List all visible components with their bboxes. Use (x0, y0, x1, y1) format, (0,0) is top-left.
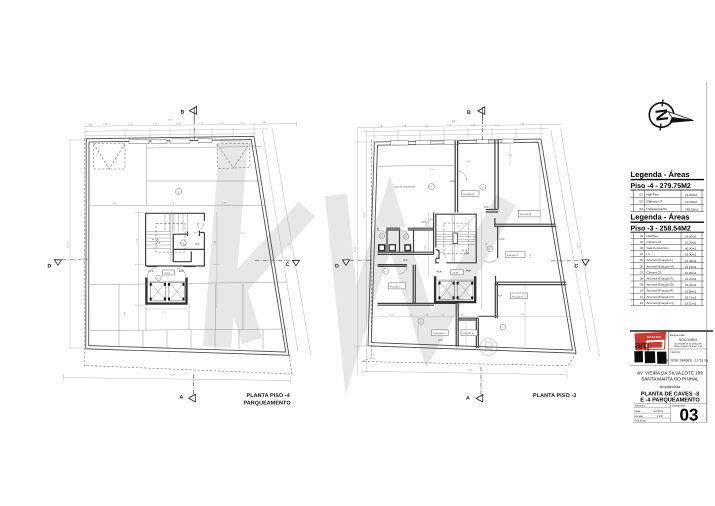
svg-text:D: D (48, 264, 52, 270)
svg-text:07: 07 (640, 270, 644, 274)
svg-text:Sala de Condominio: Sala de Condominio (394, 186, 416, 189)
svg-text:Arrumos (Fracção P): Arrumos (Fracção P) (647, 289, 674, 293)
svg-text:Data:: Data: (635, 410, 641, 413)
svg-text:Sociedade de Construções: Sociedade de Construções (674, 342, 702, 345)
svg-text:Arrumos (Fracção M): Arrumos (Fracção M) (647, 264, 674, 268)
svg-text:I.S.: I.S. (647, 252, 652, 256)
svg-text:PARQUEAMENTO: PARQUEAMENTO (244, 401, 291, 407)
svg-text:25.71m2: 25.71m2 (685, 295, 697, 299)
svg-text:E -4 PARQUEAMENTO: E -4 PARQUEAMENTO (640, 398, 700, 404)
svg-text:11: 11 (640, 295, 643, 299)
svg-text:Fracção L: Fracção L (390, 285, 401, 288)
svg-text:06: 06 (640, 264, 644, 268)
svg-text:03: 03 (640, 246, 644, 250)
svg-text:Fiúza & Abreu Simões, Lda: Fiúza & Abreu Simões, Lda (674, 345, 703, 348)
svg-text:PCP: PCP (484, 206, 489, 209)
svg-text:Câmara CF: Câmara CF (647, 240, 662, 244)
svg-text:PCP: PCP (196, 223, 199, 228)
svg-text:Câmara CF: Câmara CF (647, 270, 662, 274)
svg-text:Técnico:: Técnico: (670, 350, 681, 354)
svg-text:22.00m2: 22.00m2 (685, 283, 697, 287)
svg-text:Arquitectura: Arquitectura (660, 385, 681, 389)
svg-text:03: 03 (680, 405, 699, 424)
svg-text:04: 04 (640, 252, 644, 256)
svg-text:Arrumos (Fracção N): Arrumos (Fracção N) (647, 301, 674, 305)
svg-text:21.20m2: 21.20m2 (685, 277, 697, 281)
svg-text:Parqueamento: Parqueamento (647, 207, 668, 211)
svg-text:09: 09 (640, 283, 644, 287)
svg-text:PCP: PCP (466, 270, 471, 273)
svg-text:8.37: 8.37 (168, 119, 173, 122)
svg-text:B: B (467, 110, 471, 116)
svg-text:SOCOVIRO: SOCOVIRO (679, 338, 698, 342)
svg-text:8.37: 8.37 (452, 120, 457, 123)
svg-text:02: 02 (640, 240, 644, 244)
svg-text:10.20m2: 10.20m2 (685, 241, 697, 245)
svg-text:24.00m2: 24.00m2 (685, 193, 697, 197)
svg-text:11.76: 11.76 (354, 246, 357, 252)
svg-text:31.50: 31.50 (164, 272, 171, 275)
svg-text:Fracção O: Fracção O (512, 295, 523, 298)
svg-text:Piso -4 - 279.75M2: Piso -4 - 279.75M2 (631, 182, 691, 190)
svg-text:Piso -3 - 258.54M2: Piso -3 - 258.54M2 (631, 224, 691, 232)
svg-text:Fracção Q: Fracção Q (520, 213, 531, 216)
svg-text:12: 12 (640, 301, 644, 305)
svg-text:02: 02 (640, 200, 644, 204)
svg-text:Substitui:: Substitui: (635, 405, 646, 408)
svg-text:SANTA MARTA DO PINHAL: SANTA MARTA DO PINHAL (641, 377, 699, 382)
svg-text:PCP: PCP (422, 221, 427, 224)
svg-text:PCP: PCP (195, 243, 200, 246)
svg-text:Hall Piso: Hall Piso (647, 234, 659, 238)
svg-text:PCE: PCE (403, 259, 408, 262)
svg-text:Fracção P: Fracção P (507, 254, 518, 257)
svg-text:Processo:: Processo: (635, 419, 647, 422)
svg-text:Fracção R: Fracção R (463, 193, 474, 196)
svg-text:PLANTA PISO -3: PLANTA PISO -3 (533, 393, 576, 399)
svg-text:PCP: PCP (497, 295, 502, 298)
svg-text:Arrumos (Fracção O): Arrumos (Fracção O) (647, 295, 674, 299)
svg-text:Fracção M: Fracção M (433, 332, 444, 335)
svg-text:Sala Condominio: Sala Condominio (647, 246, 669, 250)
svg-text:10.80m2: 10.80m2 (685, 271, 697, 275)
svg-text:PCP: PCP (437, 271, 442, 274)
svg-text:16.06: 16.06 (170, 374, 176, 377)
svg-text:05: 05 (640, 258, 644, 262)
svg-text:Arrumos (Fracção L): Arrumos (Fracção L) (647, 258, 674, 262)
svg-text:PCP: PCP (438, 339, 443, 342)
svg-text:uitectos: uitectos (647, 335, 661, 339)
svg-text:Hall Piso: Hall Piso (647, 192, 659, 196)
svg-text:14.36: 14.36 (452, 272, 459, 275)
svg-text:PCP: PCP (500, 238, 505, 241)
svg-text:24.00m2: 24.00m2 (685, 234, 697, 238)
svg-text:B: B (181, 110, 185, 116)
svg-text:40.00m2: 40.00m2 (685, 247, 697, 251)
svg-text:C: C (286, 262, 290, 268)
svg-text:N: N (651, 108, 671, 123)
svg-text:10.20m2: 10.20m2 (685, 200, 697, 204)
svg-text:Fracção N: Fracção N (463, 332, 474, 335)
svg-text:05.30m2: 05.30m2 (685, 253, 697, 257)
svg-text:10.35: 10.35 (363, 212, 366, 218)
svg-text:Câmara CF: Câmara CF (647, 200, 663, 204)
svg-text:A: A (466, 395, 470, 401)
svg-text:A: A (180, 395, 184, 401)
svg-text:01: 01 (640, 192, 644, 196)
svg-text:Arrumos (Fracção Q): Arrumos (Fracção Q) (647, 283, 674, 287)
svg-text:18.10m2: 18.10m2 (685, 302, 697, 306)
svg-text:Nº JOSÉ SIMÕES - 11713 0A: Nº JOSÉ SIMÕES - 11713 0A (666, 359, 709, 363)
svg-text:12.40m2: 12.40m2 (685, 259, 697, 263)
svg-text:08: 08 (640, 277, 644, 281)
svg-text:AV. VIEIRA DA SILVA LOTE 189: AV. VIEIRA DA SILVA LOTE 189 (637, 371, 703, 376)
svg-text:24.10m2: 24.10m2 (685, 265, 697, 269)
svg-text:10: 10 (640, 289, 644, 293)
svg-text:Legenda - Áreas: Legenda - Áreas (631, 213, 690, 222)
svg-text:245.55m2: 245.55m2 (685, 207, 699, 211)
svg-text:PLANTA PISO -4: PLANTA PISO -4 (247, 393, 290, 399)
svg-text:16.06: 16.06 (467, 368, 473, 371)
svg-text:C: C (575, 263, 579, 269)
svg-text:Jul 2022: Jul 2022 (653, 410, 663, 413)
svg-text:11.76: 11.76 (67, 242, 70, 248)
svg-text:PCP: PCP (450, 180, 455, 183)
svg-text:Arrumos (Fracção R): Arrumos (Fracção R) (647, 277, 674, 281)
svg-text:arq: arq (635, 340, 649, 352)
svg-text:21.85m2: 21.85m2 (685, 289, 697, 293)
svg-text:Escala:: Escala: (635, 415, 644, 418)
svg-text:D: D (335, 264, 339, 270)
svg-text:03: 03 (640, 207, 644, 211)
svg-text:Requerente:: Requerente: (670, 333, 686, 337)
svg-text:Legenda - Áreas: Legenda - Áreas (631, 170, 690, 179)
svg-text:01: 01 (640, 234, 644, 238)
svg-text:1:200: 1:200 (657, 415, 664, 418)
